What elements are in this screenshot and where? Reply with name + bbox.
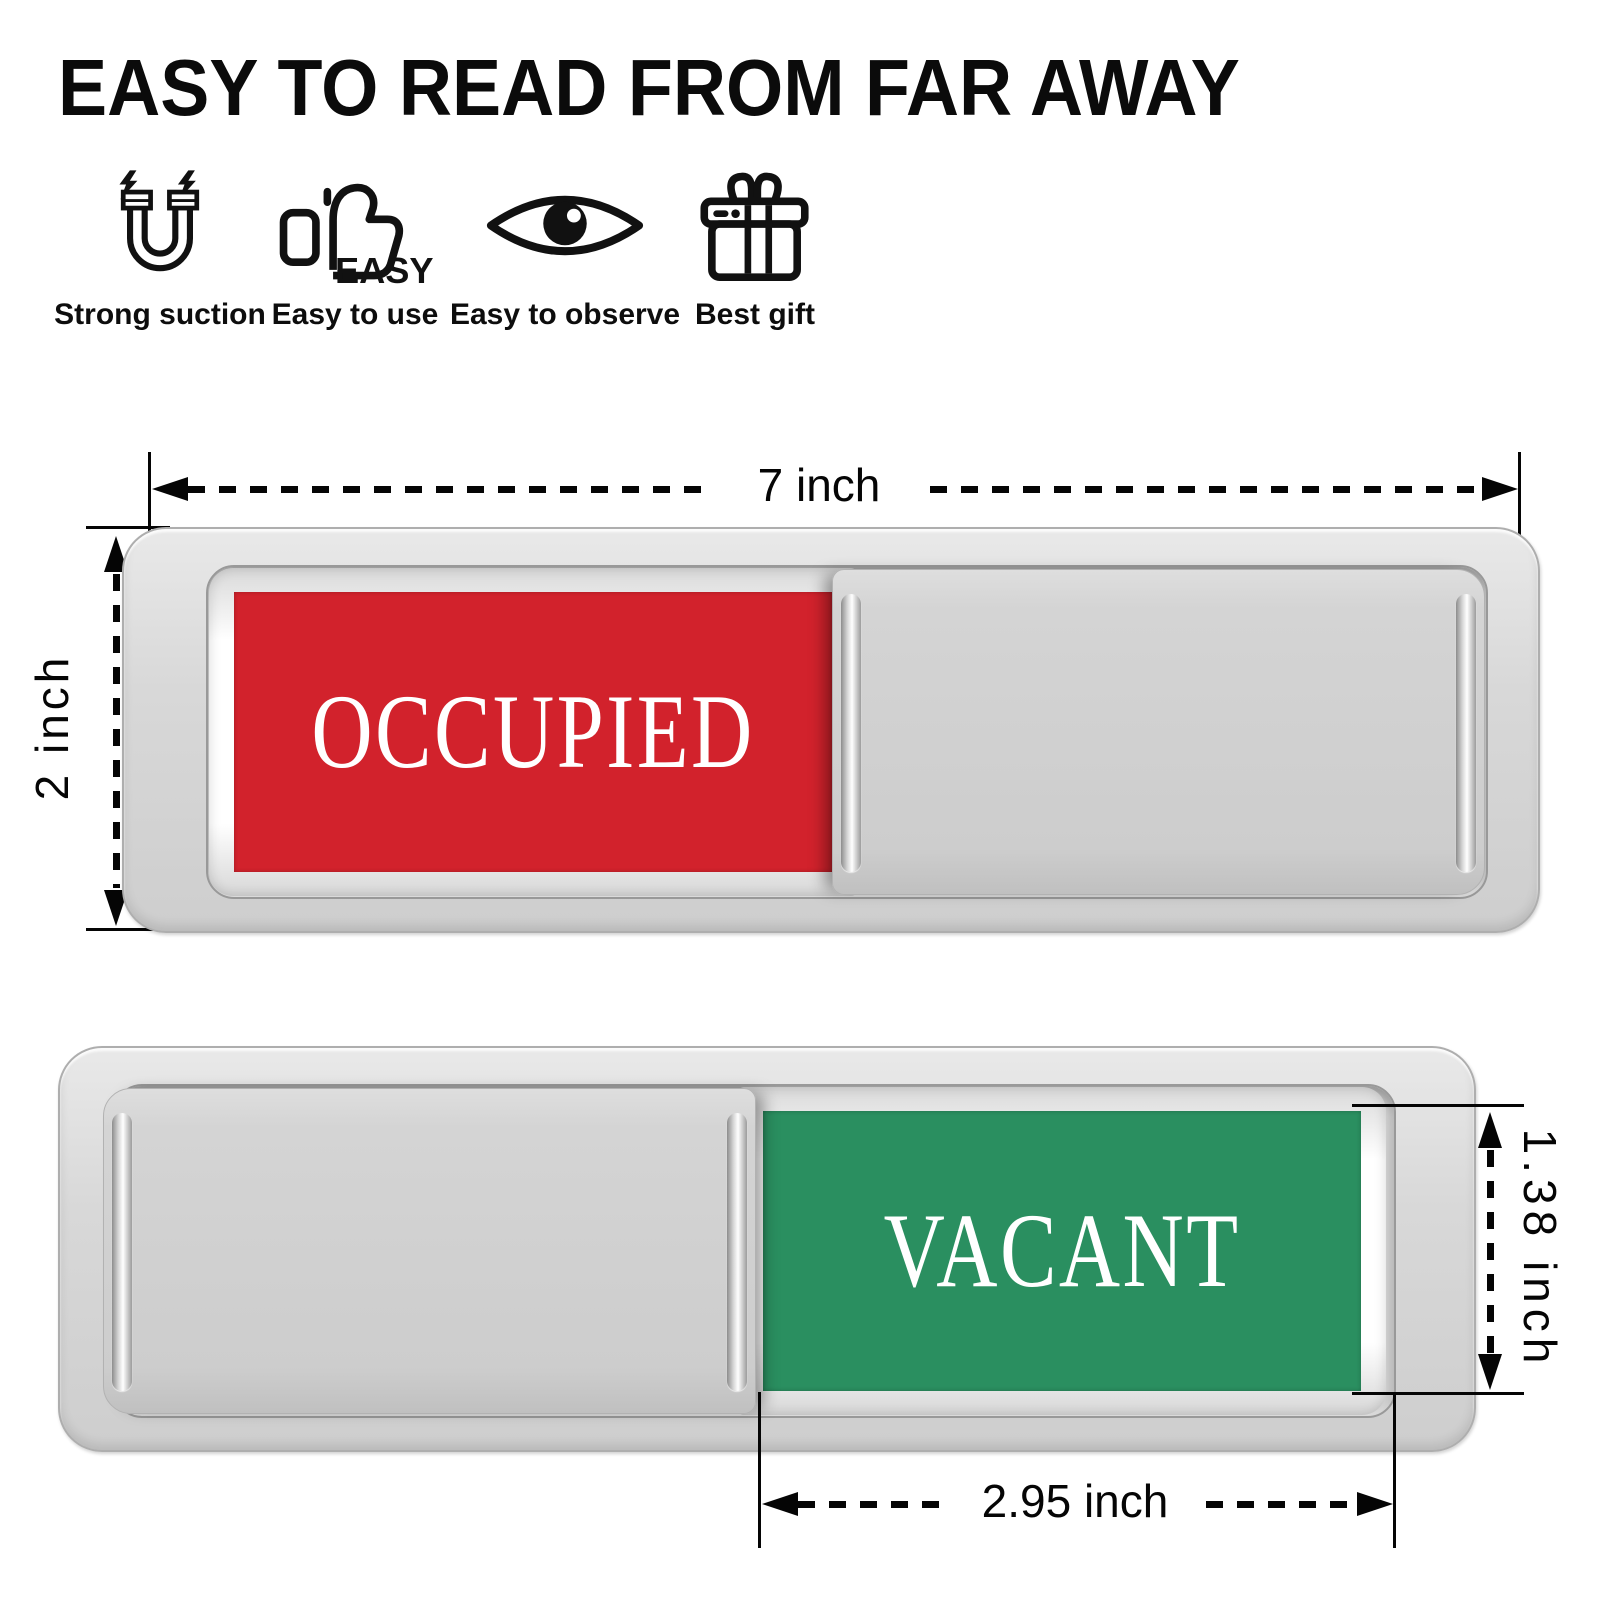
sign-height-label: 2 inch (25, 577, 79, 877)
thumbs-up-easy-icon-svg: EASY (274, 162, 436, 290)
easy-icon-text: EASY (335, 250, 434, 290)
cover-groove-right (727, 1113, 747, 1391)
window-height-label: 1.38 inch (1513, 1074, 1567, 1424)
dim-tick (1393, 1392, 1396, 1548)
dim-arrow-right-icon (1357, 1492, 1393, 1516)
cover-groove-left (841, 594, 861, 872)
magnet-icon (94, 158, 226, 294)
feature-label: Easy to use (272, 298, 439, 332)
dim-dash (113, 574, 120, 888)
vacant-slider-cover (103, 1088, 756, 1414)
window-width-label: 2.95 inch (944, 1474, 1206, 1528)
feature-row: Strong suction EASY Easy to use (60, 158, 830, 332)
dim-arrow-left-icon (152, 477, 188, 501)
dim-tick (1352, 1104, 1524, 1107)
dim-tick (148, 452, 151, 536)
gift-icon (691, 158, 819, 294)
dim-dash (188, 486, 708, 493)
cover-groove-left (112, 1113, 132, 1391)
gift-icon-svg (691, 163, 819, 289)
occupied-slider-cover (832, 569, 1485, 895)
dim-arrow-right-icon (1482, 477, 1518, 501)
eye-icon-svg (481, 174, 649, 278)
dim-dash (930, 486, 1482, 493)
feature-easy-to-use: EASY Easy to use (260, 158, 450, 332)
vacant-panel: VACANT (763, 1111, 1361, 1391)
feature-label: Easy to observe (450, 298, 680, 332)
feature-label: Best gift (695, 298, 815, 332)
magnet-icon-svg (94, 163, 226, 289)
occupied-panel: OCCUPIED (234, 592, 832, 872)
dim-tick (1352, 1392, 1524, 1395)
dim-tick (1518, 452, 1521, 536)
occupied-sign: OCCUPIED (122, 527, 1540, 933)
vacant-sign: VACANT (58, 1046, 1476, 1452)
page-title: EASY TO READ FROM FAR AWAY (58, 42, 1240, 134)
feature-best-gift: Best gift (680, 158, 830, 332)
thumbs-up-easy-icon: EASY (274, 158, 436, 294)
feature-label: Strong suction (54, 298, 266, 332)
dim-dash (798, 1501, 944, 1508)
dim-dash (1206, 1501, 1357, 1508)
eye-icon (481, 158, 649, 294)
occupied-label: OCCUPIED (311, 671, 754, 793)
dim-arrow-left-icon (762, 1492, 798, 1516)
cover-groove-right (1456, 594, 1476, 872)
vacant-label: VACANT (884, 1190, 1241, 1312)
dim-arrow-up-icon (1478, 1112, 1502, 1148)
product-infographic: EASY TO READ FROM FAR AWAY Strong suctio… (0, 0, 1600, 1600)
dim-arrow-down-icon (1478, 1354, 1502, 1390)
dim-dash (1487, 1150, 1494, 1356)
feature-strong-suction: Strong suction (60, 158, 260, 332)
dim-tick (758, 1392, 761, 1548)
sign-width-label: 7 inch (708, 458, 930, 512)
feature-easy-to-observe: Easy to observe (450, 158, 680, 332)
